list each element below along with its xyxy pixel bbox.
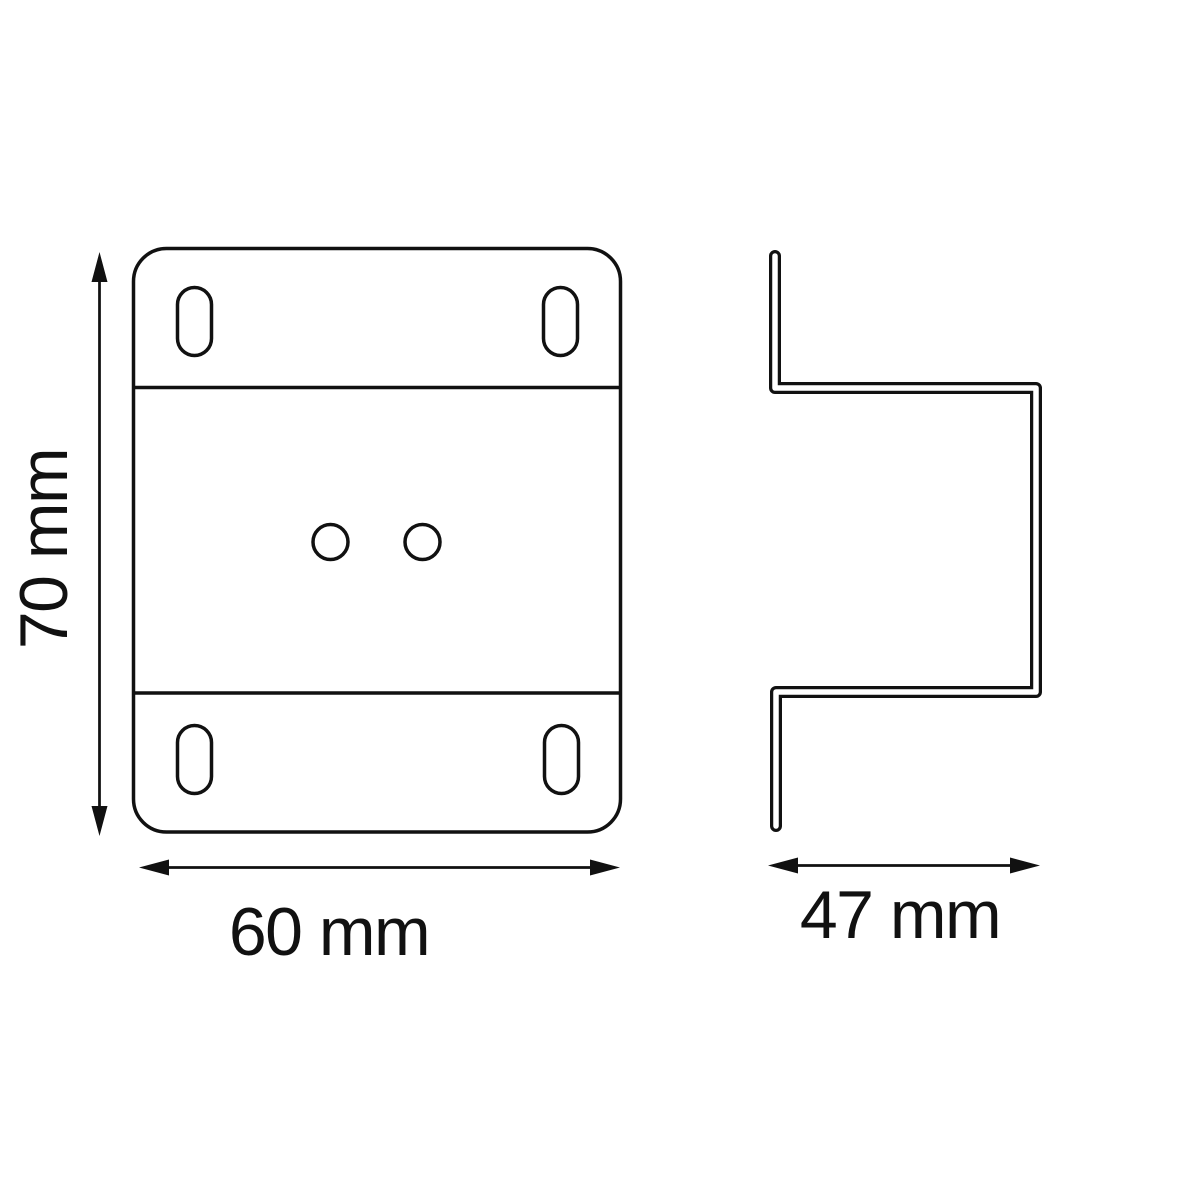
depth-dim-label: 47 mm [800,877,1000,953]
front-plate-outline [134,249,621,833]
depth-dimension: 47 mm [768,858,1040,954]
height-dim-label: 70 mm [6,449,82,649]
side-profile-sheet-fill [775,256,1036,826]
side-profile-sheet-outline [775,256,1036,826]
arrow-left-icon [139,860,169,876]
front-view [134,249,621,833]
arrow-up-icon [92,252,108,282]
arrow-left-icon [768,858,798,874]
arrow-down-icon [92,806,108,836]
side-profile-view [775,256,1036,826]
width-dimension: 60 mm [139,860,620,971]
width-dim-label: 60 mm [229,894,429,970]
arrow-right-icon [590,860,620,876]
technical-drawing: 70 mm 60 mm 47 mm [0,0,1200,1200]
arrow-right-icon [1010,858,1040,874]
height-dimension: 70 mm [6,252,108,836]
drawing-canvas: 70 mm 60 mm 47 mm [0,0,1200,1200]
